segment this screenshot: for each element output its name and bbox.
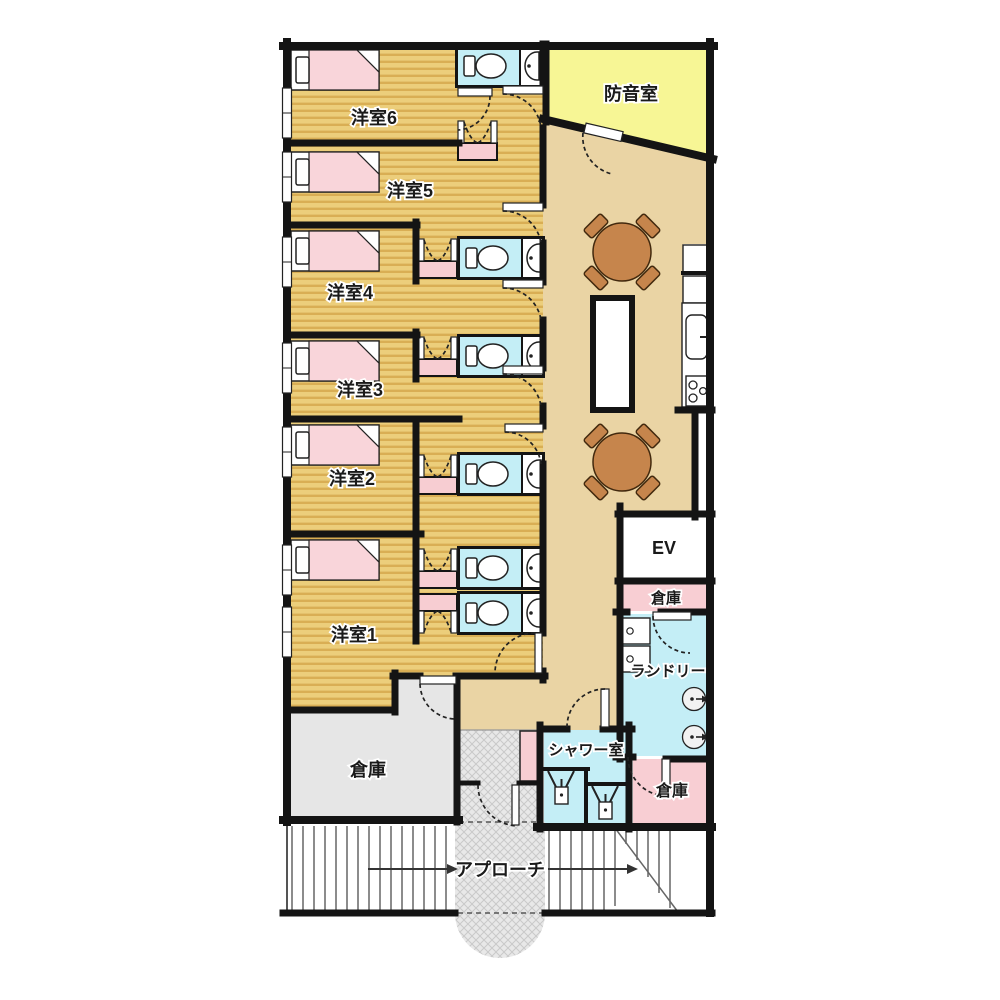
- shower-label: シャワー室: [548, 741, 623, 759]
- entrance-porch: [455, 913, 545, 958]
- window-icon: [283, 343, 292, 393]
- appliance-icon: [683, 276, 710, 303]
- storage-left-label: 倉庫: [349, 759, 386, 780]
- floor-plan: 洋室6 洋室5 洋室4 洋室3 洋室2 洋室1 防音室 EV 倉庫 ランドリー …: [0, 0, 1000, 1000]
- window-icon: [283, 237, 292, 287]
- room4-label: 洋室4: [327, 282, 373, 303]
- bed-icon: [291, 341, 379, 381]
- kitchen-island: [593, 298, 632, 410]
- storage-right-label: 倉庫: [655, 781, 688, 800]
- toilet-room: [457, 452, 545, 496]
- bed-icon: [291, 50, 379, 90]
- elevator-label: EV: [652, 538, 676, 558]
- dining-table-icon: [583, 213, 660, 290]
- toilet-room: [457, 546, 545, 590]
- toilet-room: [455, 44, 543, 88]
- room2-label: 洋室2: [329, 468, 375, 489]
- dining-table-icon: [583, 423, 660, 500]
- laundry-label: ランドリー: [630, 663, 705, 680]
- window-icon: [283, 545, 292, 595]
- stove-icon: [686, 376, 709, 406]
- toilet-room: [457, 591, 545, 635]
- washing-machine-icon: [622, 618, 650, 644]
- room1-label: 洋室1: [331, 624, 377, 645]
- room3-label: 洋室3: [337, 379, 383, 400]
- appliance-icon: [683, 245, 710, 272]
- arrow-right-icon: [627, 864, 638, 874]
- bed-icon: [291, 425, 379, 465]
- bed-icon: [291, 152, 379, 192]
- window-icon: [283, 152, 292, 202]
- room6-label: 洋室6: [351, 107, 397, 128]
- soundproof-label: 防音室: [604, 83, 658, 104]
- window-icon: [283, 427, 292, 477]
- toilet-room: [457, 236, 545, 280]
- bed-icon: [291, 540, 379, 580]
- window-icon: [283, 88, 292, 138]
- window-icon: [283, 607, 292, 657]
- windows: [283, 88, 292, 657]
- shoe-cabinet: [520, 731, 539, 781]
- approach-label: アプローチ: [455, 859, 545, 880]
- floor-plan-page: 洋室6 洋室5 洋室4 洋室3 洋室2 洋室1 防音室 EV 倉庫 ランドリー …: [0, 0, 1000, 1000]
- storage-mid-label: 倉庫: [650, 589, 681, 607]
- room5-label: 洋室5: [387, 180, 433, 201]
- bed-icon: [291, 231, 379, 271]
